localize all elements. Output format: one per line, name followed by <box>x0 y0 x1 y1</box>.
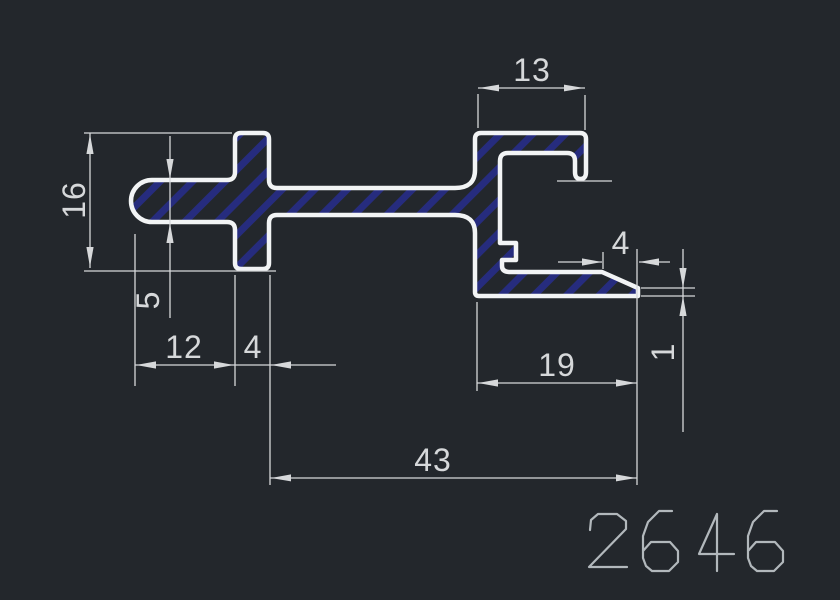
arrowhead <box>166 223 173 243</box>
part-number-digit-6 <box>643 511 678 571</box>
dimension-stem-width: 4 <box>244 329 291 369</box>
dim-text-overall-width: 43 <box>414 442 452 478</box>
arrowhead <box>136 361 156 368</box>
dimension-arm-thickness: 5 <box>130 136 174 318</box>
arrowhead <box>616 474 636 481</box>
arrowhead <box>564 85 584 92</box>
part-number <box>589 511 783 571</box>
arrowhead <box>271 361 291 368</box>
dim-text-stem-width: 4 <box>244 329 263 365</box>
arrowhead <box>478 379 498 386</box>
dim-text-top-width: 13 <box>513 52 551 88</box>
dim-text-flange-depth: 19 <box>538 347 576 383</box>
cad-drawing: 13 16 5 12 4 <box>0 0 840 600</box>
dim-text-arm-offset: 12 <box>165 329 203 365</box>
cad-drawing-canvas: 13 16 5 12 4 <box>0 0 840 600</box>
dimension-overall-width: 43 <box>270 275 637 485</box>
part-number-digit-2 <box>589 514 627 567</box>
dim-text-taper-length: 4 <box>612 225 631 261</box>
part-number-digit-4 <box>699 514 734 571</box>
arrowhead <box>639 258 659 265</box>
arrowhead <box>86 134 93 154</box>
dimension-taper-length: 4 <box>558 225 670 269</box>
arrowhead <box>166 159 173 179</box>
arrowhead <box>86 247 93 267</box>
arrowhead <box>582 258 602 265</box>
arrowhead <box>479 85 499 92</box>
arrowhead <box>271 474 291 481</box>
arrowhead <box>616 379 636 386</box>
dim-text-tip-thickness: 1 <box>645 343 681 362</box>
dimension-tip-thickness: 1 <box>641 249 695 432</box>
arrowhead <box>679 268 686 288</box>
dim-text-left-height: 16 <box>56 181 92 219</box>
arrowhead <box>214 361 234 368</box>
dimension-top-width: 13 <box>478 52 585 130</box>
arrowhead <box>679 296 686 316</box>
part-number-digit-6b <box>748 511 783 571</box>
